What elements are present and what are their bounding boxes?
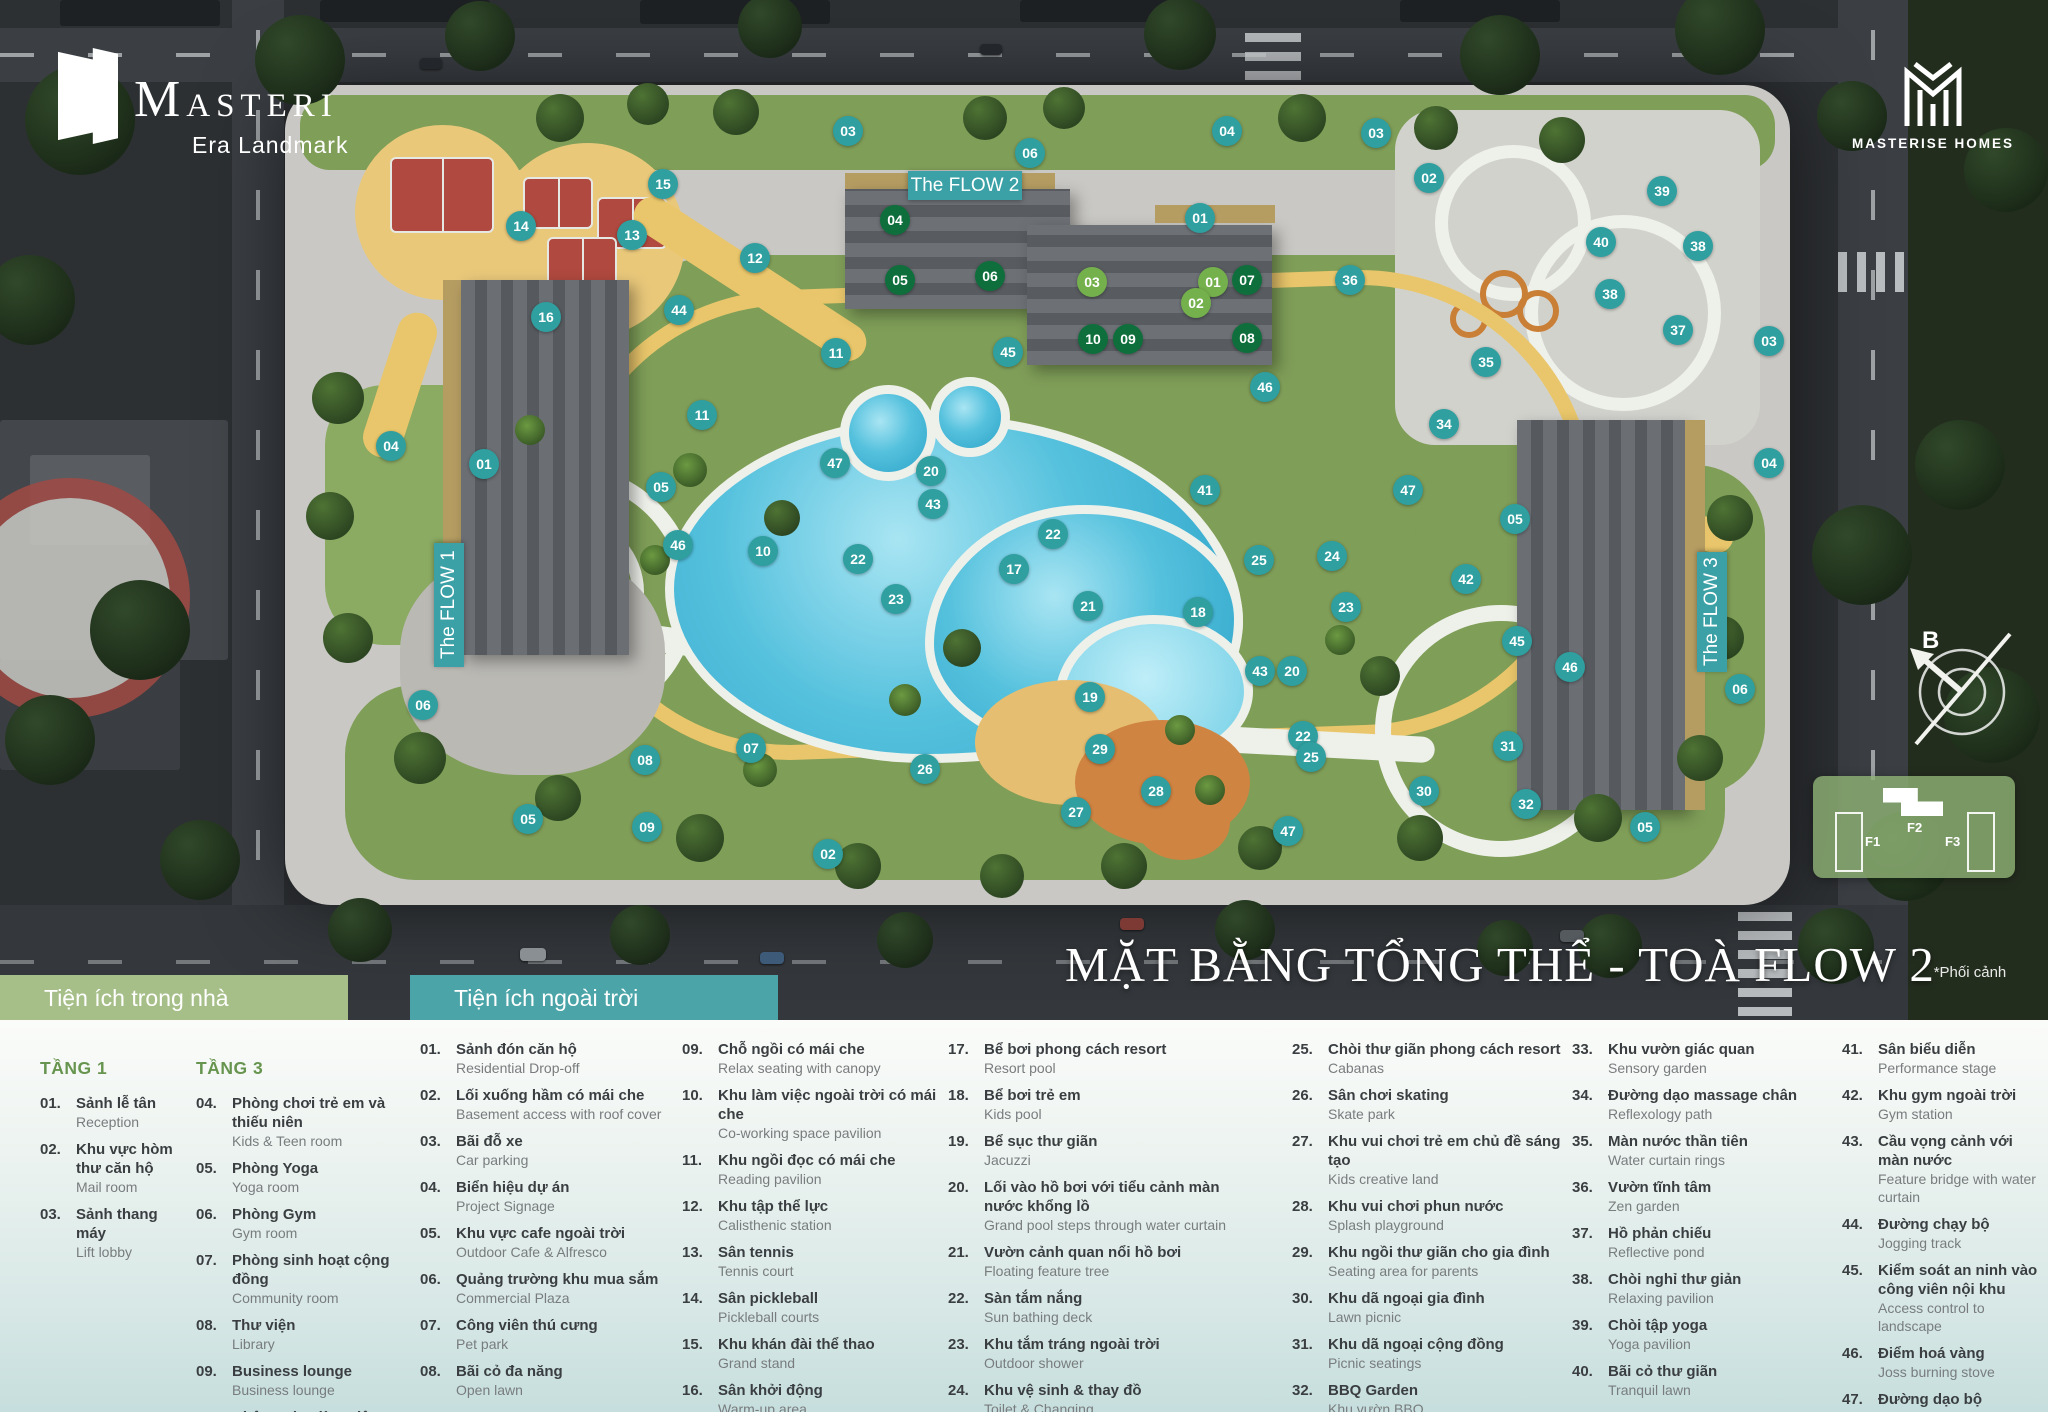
legend-item-number: 04.	[196, 1094, 232, 1150]
legend-item-vi: Sảnh thang máy	[76, 1205, 190, 1243]
legend-item-number: 03.	[420, 1132, 456, 1169]
legend-item-text: Công viên thú cưngPet park	[456, 1316, 598, 1353]
masterise-monogram-icon	[1901, 52, 1965, 128]
legend-item-en: Grand pool steps through water curtain	[984, 1216, 1258, 1234]
legend-item-text: Thư việnLibrary	[232, 1316, 295, 1353]
tree-icon	[1101, 843, 1147, 889]
legend-item-number: 32.	[1292, 1381, 1328, 1412]
legend-outdoor-column-1: 01. Sảnh đón căn hộResidential Drop-off …	[420, 1040, 680, 1408]
legend-item-number: 19.	[948, 1132, 984, 1169]
legend-item: 45. Kiểm soát an ninh vào công viên nội …	[1842, 1261, 2042, 1335]
legend-item-number: 38.	[1572, 1270, 1608, 1307]
tower-tag-flow2-label: The FLOW 2	[911, 175, 1020, 197]
legend-item-vi: Vườn cảnh quan nổi hồ bơi	[984, 1243, 1181, 1262]
tree-icon	[673, 453, 707, 487]
legend-item-en: Access control to landscape	[1878, 1299, 2042, 1335]
legend-item-text: Khu dã ngoại gia đìnhLawn picnic	[1328, 1289, 1485, 1326]
legend-item-text: Vườn tĩnh tâmZen garden	[1608, 1178, 1711, 1215]
tree-icon	[5, 695, 95, 785]
tree-icon	[1414, 106, 1458, 150]
legend-item-vi: Khu vui chơi trẻ em chủ đề sáng tạo	[1328, 1132, 1562, 1170]
floor3-title: TẦNG 3	[196, 1058, 263, 1079]
legend-item-en: Open lawn	[456, 1381, 563, 1399]
legend-item-text: Hồ phản chiếuReflective pond	[1608, 1224, 1711, 1261]
legend-item-text: Lối vào hồ bơi với tiểu cảnh màn nước kh…	[984, 1178, 1258, 1234]
legend-item-en: Seating area for parents	[1328, 1262, 1550, 1280]
legend-item-vi: Khu làm việc ngoài trời có mái che	[718, 1086, 942, 1124]
legend-item-text: Khu làm việc ngoài trời có mái cheCo-wor…	[718, 1086, 942, 1142]
legend-item-vi: Khu vệ sinh & thay đồ	[984, 1381, 1142, 1400]
legend-item: 37. Hồ phản chiếuReflective pond	[1572, 1224, 1822, 1261]
legend-item-number: 17.	[948, 1040, 984, 1077]
car-icon	[420, 58, 442, 69]
masteri-wordmark: MASTERI	[134, 74, 348, 126]
flow1-building	[461, 280, 629, 655]
legend-item-number: 15.	[682, 1335, 718, 1372]
tower-tag-flow2: The FLOW 2	[908, 171, 1022, 200]
svg-text:B: B	[1922, 627, 1939, 654]
legend-item-vi: Bể sục thư giãn	[984, 1132, 1097, 1151]
legend-item-text: Khu vực cafe ngoài trờiOutdoor Cafe & Al…	[456, 1224, 625, 1261]
flow2-canopy-east	[1155, 205, 1275, 223]
legend-item-vi: Đường dạo massage chân	[1608, 1086, 1797, 1105]
legend-item-text: Sân pickleballPickleball courts	[718, 1289, 819, 1326]
legend-item-text: Phòng YogaYoga room	[232, 1159, 318, 1196]
legend-item-en: Business lounge	[232, 1381, 352, 1399]
legend-item-vi: Phòng Yoga	[232, 1159, 318, 1178]
legend-item: 22. Sàn tắm nắngSun bathing deck	[948, 1289, 1258, 1326]
legend-item-en: Sun bathing deck	[984, 1308, 1092, 1326]
masteri-logo: MASTERI Era Landmark	[58, 48, 348, 159]
jacuzzi	[840, 385, 936, 481]
legend-item-en: Gym station	[1878, 1105, 2016, 1123]
tree-icon	[515, 415, 545, 445]
legend-item: 09. Chỗ ngồi có mái cheRelax seating wit…	[682, 1040, 942, 1077]
legend-item: 09. Business loungeBusiness lounge	[196, 1362, 416, 1399]
tree-icon	[1574, 794, 1622, 842]
legend-item-number: 41.	[1842, 1040, 1878, 1077]
tree-icon	[963, 96, 1007, 140]
legend-item-text: Sân tennisTennis court	[718, 1243, 794, 1280]
legend-item-vi: Đường chạy bộ	[1878, 1215, 1990, 1234]
legend-item-text: Vườn cảnh quan nổi hồ bơiFloating featur…	[984, 1243, 1181, 1280]
legend-item-text: Khu tắm tráng ngoài trờiOutdoor shower	[984, 1335, 1160, 1372]
legend-item-text: Khu vực hòm thư căn hộMail room	[76, 1140, 190, 1196]
legend-item-en: Project Signage	[456, 1197, 569, 1215]
outdoor-amenities-header: Tiện ích ngoài trời	[410, 975, 778, 1021]
legend-item-vi: Chòi thư giãn phong cách resort	[1328, 1040, 1561, 1059]
legend-item-number: 42.	[1842, 1086, 1878, 1123]
legend-item-number: 10.	[682, 1086, 718, 1142]
legend-item-vi: Khu vực hòm thư căn hộ	[76, 1140, 190, 1178]
legend-item-vi: Biển hiệu dự án	[456, 1178, 569, 1197]
tree-icon	[312, 372, 364, 424]
legend-item-en: Pickleball courts	[718, 1308, 819, 1326]
legend-item: 40. Bãi cỏ thư giãnTranquil lawn	[1572, 1362, 1822, 1399]
legend-item-vi: Sảnh lễ tân	[76, 1094, 156, 1113]
legend-item: 17. Bể bơi phong cách resortResort pool	[948, 1040, 1258, 1077]
tree-icon	[0, 255, 75, 345]
legend-item-text: Phòng chơi trẻ em và thiếu niênKids & Te…	[232, 1094, 416, 1150]
legend-item-vi: Business lounge	[232, 1362, 352, 1381]
crosswalk-right	[1838, 252, 1908, 292]
legend-item-text: Đường dạo bộWalking path	[1878, 1390, 1982, 1412]
legend-item-en: Yoga room	[232, 1178, 318, 1196]
legend-item-en: Residential Drop-off	[456, 1059, 579, 1077]
legend-item-text: Chòi thư giãn phong cách resortCabanas	[1328, 1040, 1561, 1077]
legend-item-number: 22.	[948, 1289, 984, 1326]
tower-tag-flow3: The FLOW 3	[1697, 552, 1727, 672]
legend-item-number: 07.	[420, 1316, 456, 1353]
tree-icon	[1677, 735, 1723, 781]
legend-item-text: Màn nước thần tiênWater curtain rings	[1608, 1132, 1748, 1169]
legend-item-text: Không gian làm việcCo-working space	[232, 1408, 378, 1412]
legend-item-number: 06.	[196, 1205, 232, 1242]
legend-item: 46. Điểm hoá vàngJoss burning stove	[1842, 1344, 2042, 1381]
water-ring	[1517, 290, 1559, 332]
legend-item: 30. Khu dã ngoại gia đìnhLawn picnic	[1292, 1289, 1562, 1326]
tree-icon	[1165, 715, 1195, 745]
legend-item-vi: Sân chơi skating	[1328, 1086, 1449, 1105]
flow3-building	[1517, 420, 1685, 810]
tree-icon	[323, 613, 373, 663]
legend-item: 21. Vườn cảnh quan nổi hồ bơiFloating fe…	[948, 1243, 1258, 1280]
tower-tag-flow3-label: The FLOW 3	[1701, 558, 1723, 667]
legend-item-vi: Phòng sinh hoạt cộng đồng	[232, 1251, 416, 1289]
legend-item-en: Community room	[232, 1289, 416, 1307]
legend-item: 03. Bãi đỗ xeCar parking	[420, 1132, 680, 1169]
legend-item: 04. Biển hiệu dự ánProject Signage	[420, 1178, 680, 1215]
tree-icon	[627, 83, 669, 125]
legend-item: 16. Sân khởi độngWarm-up area	[682, 1381, 942, 1412]
legend-item-text: Chỗ ngồi có mái cheRelax seating with ca…	[718, 1040, 881, 1077]
legend-item-en: Joss burning stove	[1878, 1363, 1995, 1381]
locator-f3-shape	[1967, 812, 1995, 872]
legend-item: 10. Không gian làm việcCo-working space	[196, 1408, 416, 1412]
legend-item-vi: Khu dã ngoại cộng đồng	[1328, 1335, 1504, 1354]
tree-icon	[1812, 505, 1912, 605]
legend-item: 08. Bãi cỏ đa năngOpen lawn	[420, 1362, 680, 1399]
legend-item-number: 25.	[1292, 1040, 1328, 1077]
crosswalk-top	[1245, 30, 1301, 80]
legend-item: 05. Phòng YogaYoga room	[196, 1159, 416, 1196]
legend-item-text: Sảnh thang máyLift lobby	[76, 1205, 190, 1261]
legend-item-text: Phòng sinh hoạt cộng đồngCommunity room	[232, 1251, 416, 1307]
legend-item-vi: Kiểm soát an ninh vào công viên nội khu	[1878, 1261, 2042, 1299]
legend-item: 27. Khu vui chơi trẻ em chủ đề sáng tạoK…	[1292, 1132, 1562, 1188]
legend-item-en: Splash playground	[1328, 1216, 1504, 1234]
legend-item-number: 08.	[420, 1362, 456, 1399]
legend-item: 33. Khu vườn giác quanSensory garden	[1572, 1040, 1822, 1077]
legend-item-number: 29.	[1292, 1243, 1328, 1280]
legend-item-text: Kiểm soát an ninh vào công viên nội khuA…	[1878, 1261, 2042, 1335]
legend-item-text: Sân khởi độngWarm-up area	[718, 1381, 823, 1412]
masterise-homes-label: MASTERISE HOMES	[1848, 136, 2018, 151]
legend-item-vi: Sàn tắm nắng	[984, 1289, 1092, 1308]
legend-item: 44. Đường chạy bộJogging track	[1842, 1215, 2042, 1252]
legend-item: 35. Màn nước thần tiênWater curtain ring…	[1572, 1132, 1822, 1169]
tree-icon	[1278, 94, 1326, 142]
legend-item-text: Khu vui chơi trẻ em chủ đề sáng tạoKids …	[1328, 1132, 1562, 1188]
legend-item-vi: Cầu vọng cảnh với màn nước	[1878, 1132, 2042, 1170]
legend-item-text: Sân biểu diễnPerformance stage	[1878, 1040, 1996, 1077]
legend-item-text: Đường dạo massage chânReflexology path	[1608, 1086, 1797, 1123]
jacuzzi-2	[930, 377, 1010, 457]
legend-item-en: Mail room	[76, 1178, 190, 1196]
tree-icon	[1460, 15, 1540, 95]
tower-tag-flow1-label: The FLOW 1	[438, 551, 460, 660]
legend-item-vi: Khu vườn giác quan	[1608, 1040, 1755, 1059]
legend-item: 14. Sân pickleballPickleball courts	[682, 1289, 942, 1326]
legend-item-en: Jacuzzi	[984, 1151, 1097, 1169]
tree-icon	[536, 94, 584, 142]
tree-icon	[445, 1, 515, 71]
legend-item-text: Chòi nghỉ thư giảnRelaxing pavilion	[1608, 1270, 1741, 1307]
indoor-amenities-header-label: Tiện ích trong nhà	[44, 985, 229, 1012]
legend-item: 24. Khu vệ sinh & thay đồToilet & Changi…	[948, 1381, 1258, 1412]
legend-item-vi: Khu vui chơi phun nước	[1328, 1197, 1504, 1216]
legend-item: 06. Phòng GymGym room	[196, 1205, 416, 1242]
legend-item-vi: Vườn tĩnh tâm	[1608, 1178, 1711, 1197]
legend-item-number: 31.	[1292, 1335, 1328, 1372]
legend-item-text: Khu vệ sinh & thay đồToilet & Changing	[984, 1381, 1142, 1412]
legend-item-number: 03.	[40, 1205, 76, 1261]
tree-icon	[306, 492, 354, 540]
legend-item-text: Khu gym ngoài trờiGym station	[1878, 1086, 2016, 1123]
legend-item-vi: Màn nước thần tiên	[1608, 1132, 1748, 1151]
legend-item-vi: Sân tennis	[718, 1243, 794, 1262]
tree-icon	[535, 775, 581, 821]
compass-icon: B	[1888, 626, 2028, 751]
car-icon	[760, 952, 784, 964]
tree-icon	[1707, 495, 1753, 541]
legend-item-en: Tranquil lawn	[1608, 1381, 1717, 1399]
locator-f2-shape	[1883, 788, 1943, 816]
legend-item: 12. Khu tập thể lựcCalisthenic station	[682, 1197, 942, 1234]
tree-icon	[610, 905, 670, 965]
legend-item: 02. Khu vực hòm thư căn hộMail room	[40, 1140, 190, 1196]
locator-f3-label: F3	[1945, 834, 1960, 849]
legend-item-en: Reflexology path	[1608, 1105, 1797, 1123]
legend-item: 29. Khu ngồi thư giãn cho gia đìnhSeatin…	[1292, 1243, 1562, 1280]
indoor-amenities-header: Tiện ích trong nhà	[0, 975, 348, 1021]
legend-item-vi: Khu khán đài thể thao	[718, 1335, 875, 1354]
legend-item-number: 05.	[420, 1224, 456, 1261]
legend-item: 03. Sảnh thang máyLift lobby	[40, 1205, 190, 1261]
legend-item-text: Sảnh đón căn hộResidential Drop-off	[456, 1040, 579, 1077]
car-icon	[980, 44, 1002, 55]
legend-item-en: Tennis court	[718, 1262, 794, 1280]
legend-item-vi: Phòng chơi trẻ em và thiếu niên	[232, 1094, 416, 1132]
tree-icon	[1144, 0, 1216, 70]
legend-item-number: 30.	[1292, 1289, 1328, 1326]
legend-item-number: 13.	[682, 1243, 718, 1280]
tree-icon	[1325, 625, 1355, 655]
legend-item: 02. Lối xuống hầm có mái cheBasement acc…	[420, 1086, 680, 1123]
legend-item: 23. Khu tắm tráng ngoài trờiOutdoor show…	[948, 1335, 1258, 1372]
legend-item-en: Zen garden	[1608, 1197, 1711, 1215]
legend-item: 32. BBQ GardenKhu vườn BBQ	[1292, 1381, 1562, 1412]
tree-icon	[1360, 656, 1400, 696]
legend-item-text: Khu ngồi đọc có mái cheReading pavilion	[718, 1151, 896, 1188]
legend-item-vi: Khu tắm tráng ngoài trời	[984, 1335, 1160, 1354]
legend-item-number: 11.	[682, 1151, 718, 1188]
legend-item-number: 07.	[196, 1251, 232, 1307]
legend-item: 25. Chòi thư giãn phong cách resortCaban…	[1292, 1040, 1562, 1077]
legend-item-number: 39.	[1572, 1316, 1608, 1353]
legend-item-number: 18.	[948, 1086, 984, 1123]
legend-item-en: Sensory garden	[1608, 1059, 1755, 1077]
flow2-building-east	[1027, 225, 1272, 365]
context-building	[1400, 0, 1560, 22]
legend-item-vi: Khu tập thể lực	[718, 1197, 832, 1216]
legend-item-vi: Sân pickleball	[718, 1289, 819, 1308]
tree-icon	[1915, 420, 2005, 510]
legend-item-en: Calisthenic station	[718, 1216, 832, 1234]
legend-item-text: Khu tập thể lựcCalisthenic station	[718, 1197, 832, 1234]
legend-item-vi: Hồ phản chiếu	[1608, 1224, 1711, 1243]
legend-item-number: 34.	[1572, 1086, 1608, 1123]
legend-item-number: 28.	[1292, 1197, 1328, 1234]
legend-item-number: 40.	[1572, 1362, 1608, 1399]
tree-icon	[713, 89, 759, 135]
legend-item: 19. Bể sục thư giãnJacuzzi	[948, 1132, 1258, 1169]
legend-item-number: 35.	[1572, 1132, 1608, 1169]
legend-item-text: Bể bơi phong cách resortResort pool	[984, 1040, 1166, 1077]
legend-item: 04. Phòng chơi trẻ em và thiếu niênKids …	[196, 1094, 416, 1150]
legend-panel: TẦNG 1 TẦNG 3 01. Sảnh lễ tânReception 0…	[0, 1020, 2048, 1412]
legend-item: 10. Khu làm việc ngoài trời có mái cheCo…	[682, 1086, 942, 1142]
car-icon	[520, 948, 546, 961]
legend-item-text: Bãi đỗ xeCar parking	[456, 1132, 528, 1169]
tree-icon	[394, 732, 446, 784]
legend-item-en: Gym room	[232, 1224, 316, 1242]
tree-icon	[877, 912, 933, 968]
legend-item-en: Lawn picnic	[1328, 1308, 1485, 1326]
tennis-court	[390, 157, 494, 233]
legend-item-vi: Khu ngồi đọc có mái che	[718, 1151, 896, 1170]
legend-item-vi: Không gian làm việc	[232, 1408, 378, 1412]
legend-item-en: Outdoor Cafe & Alfresco	[456, 1243, 625, 1261]
legend-outdoor-column-2: 09. Chỗ ngồi có mái cheRelax seating wit…	[682, 1040, 942, 1412]
tree-icon	[328, 898, 392, 962]
legend-item: 39. Chòi tập yogaYoga pavilion	[1572, 1316, 1822, 1353]
legend-item-en: Kids pool	[984, 1105, 1081, 1123]
legend-item-number: 20.	[948, 1178, 984, 1234]
legend-item-number: 06.	[420, 1270, 456, 1307]
legend-item-number: 47.	[1842, 1390, 1878, 1412]
tree-icon	[160, 820, 240, 900]
tree-icon	[943, 629, 981, 667]
legend-item-number: 12.	[682, 1197, 718, 1234]
legend-item-number: 01.	[40, 1094, 76, 1131]
legend-item-text: Phòng GymGym room	[232, 1205, 316, 1242]
legend-item-vi: Bãi cỏ đa năng	[456, 1362, 563, 1381]
legend-item-text: Sàn tắm nắngSun bathing deck	[984, 1289, 1092, 1326]
legend-item: 08. Thư việnLibrary	[196, 1316, 416, 1353]
legend-item-en: Outdoor shower	[984, 1354, 1160, 1372]
legend-item-number: 33.	[1572, 1040, 1608, 1077]
masterise-homes-logo: MASTERISE HOMES	[1848, 52, 2018, 151]
legend-item: 47. Đường dạo bộWalking path	[1842, 1390, 2042, 1412]
legend-item-vi: Lối vào hồ bơi với tiểu cảnh màn nước kh…	[984, 1178, 1258, 1216]
legend-item-number: 37.	[1572, 1224, 1608, 1261]
legend-item-text: Business loungeBusiness lounge	[232, 1362, 352, 1399]
legend-outdoor-column-6: 41. Sân biểu diễnPerformance stage 42. K…	[1842, 1040, 2042, 1412]
legend-item-en: Commercial Plaza	[456, 1289, 658, 1307]
legend-item-text: Khu dã ngoại cộng đồngPicnic seatings	[1328, 1335, 1504, 1372]
legend-item-en: Basement access with roof cover	[456, 1105, 661, 1123]
legend-item-vi: Bãi đỗ xe	[456, 1132, 528, 1151]
legend-item-number: 23.	[948, 1335, 984, 1372]
legend-item-en: Yoga pavilion	[1608, 1335, 1707, 1353]
legend-item-text: Biển hiệu dự ánProject Signage	[456, 1178, 569, 1215]
legend-item-number: 01.	[420, 1040, 456, 1077]
legend-item-vi: Chỗ ngồi có mái che	[718, 1040, 881, 1059]
legend-item-en: Kids creative land	[1328, 1170, 1562, 1188]
legend-item-en: Floating feature tree	[984, 1262, 1181, 1280]
legend-item-number: 27.	[1292, 1132, 1328, 1188]
legend-item-vi: Sân khởi động	[718, 1381, 823, 1400]
legend-item-number: 14.	[682, 1289, 718, 1326]
legend-item: 07. Công viên thú cưngPet park	[420, 1316, 680, 1353]
floor1-title: TẦNG 1	[40, 1058, 107, 1079]
legend-item-text: Chòi tập yogaYoga pavilion	[1608, 1316, 1707, 1353]
legend-item: 36. Vườn tĩnh tâmZen garden	[1572, 1178, 1822, 1215]
legend-item-vi: Chòi nghỉ thư giản	[1608, 1270, 1741, 1289]
legend-item-number: 43.	[1842, 1132, 1878, 1206]
legend-item: 13. Sân tennisTennis court	[682, 1243, 942, 1280]
legend-item-text: Sảnh lễ tânReception	[76, 1094, 156, 1131]
legend-item-en: Kids & Teen room	[232, 1132, 416, 1150]
legend-item: 31. Khu dã ngoại cộng đồngPicnic seating…	[1292, 1335, 1562, 1372]
legend-item-en: Lift lobby	[76, 1243, 190, 1261]
legend-item: 05. Khu vực cafe ngoài trờiOutdoor Cafe …	[420, 1224, 680, 1261]
legend-item: 18. Bể bơi trẻ emKids pool	[948, 1086, 1258, 1123]
legend-item-en: Khu vườn BBQ	[1328, 1400, 1424, 1412]
car-icon	[1120, 918, 1144, 930]
legend-item-text: Bãi cỏ thư giãnTranquil lawn	[1608, 1362, 1717, 1399]
tree-icon	[889, 684, 921, 716]
legend-item-text: Khu ngồi thư giãn cho gia đìnhSeating ar…	[1328, 1243, 1550, 1280]
legend-item-number: 16.	[682, 1381, 718, 1412]
legend-item-text: Khu vui chơi phun nướcSplash playground	[1328, 1197, 1504, 1234]
legend-item-number: 02.	[40, 1140, 76, 1196]
legend-item-number: 24.	[948, 1381, 984, 1412]
legend-item: 26. Sân chơi skatingSkate park	[1292, 1086, 1562, 1123]
legend-item-en: Water curtain rings	[1608, 1151, 1748, 1169]
legend-item-vi: Sân biểu diễn	[1878, 1040, 1996, 1059]
legend-item-vi: Đường dạo bộ	[1878, 1390, 1982, 1409]
legend-item-en: Warm-up area	[718, 1400, 823, 1412]
outdoor-amenities-header-label: Tiện ích ngoài trời	[454, 985, 638, 1012]
context-building	[60, 0, 220, 26]
legend-item-en: Relax seating with canopy	[718, 1059, 881, 1077]
legend-item-en: Reception	[76, 1113, 156, 1131]
legend-outdoor-column-5: 33. Khu vườn giác quanSensory garden 34.…	[1572, 1040, 1822, 1408]
page-title: MẶT BẰNG TỔNG THỂ - TOÀ FLOW 2	[1065, 936, 1805, 993]
legend-item: 15. Khu khán đài thể thaoGrand stand	[682, 1335, 942, 1372]
legend-item: 07. Phòng sinh hoạt cộng đồngCommunity r…	[196, 1251, 416, 1307]
legend-item-number: 26.	[1292, 1086, 1328, 1123]
legend-item-en: Skate park	[1328, 1105, 1449, 1123]
legend-item-text: Điểm hoá vàngJoss burning stove	[1878, 1344, 1995, 1381]
legend-item-number: 21.	[948, 1243, 984, 1280]
legend-item-vi: Công viên thú cưng	[456, 1316, 598, 1335]
tree-icon	[1238, 826, 1282, 870]
legend-item-number: 05.	[196, 1159, 232, 1196]
legend-item-en: Toilet & Changing	[984, 1400, 1142, 1412]
